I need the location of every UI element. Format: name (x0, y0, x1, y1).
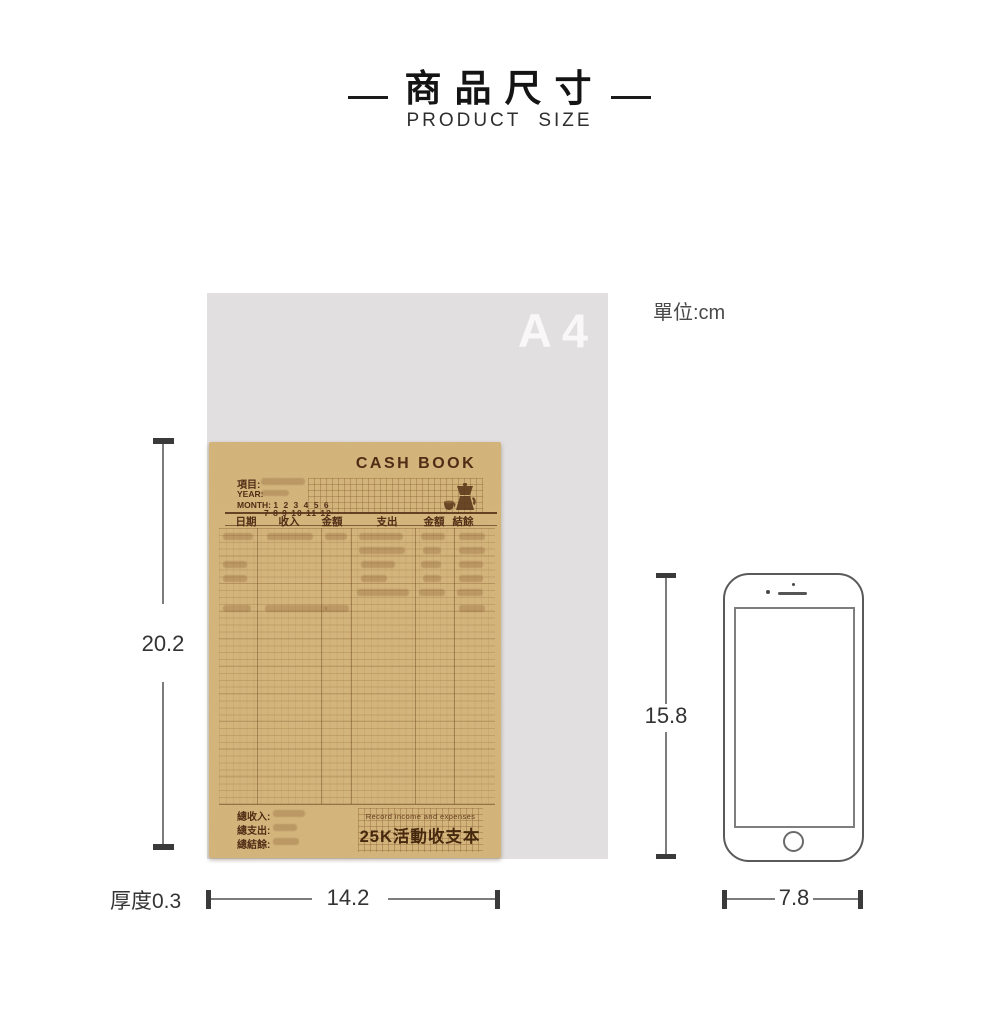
footer-rule (219, 804, 495, 805)
column-rule (257, 528, 258, 804)
dim-cap (495, 890, 500, 909)
dim-line (388, 898, 495, 900)
dim-value-book-height: 20.2 (133, 631, 193, 657)
col-header-expense: 支出 (367, 514, 407, 529)
unit-label: 單位:cm (653, 296, 725, 325)
total-balance-label: 總結餘: (237, 836, 270, 851)
col-header-income: 收入 (269, 514, 309, 529)
column-rule (321, 528, 322, 804)
a4-label: A4 (518, 303, 598, 358)
col-header-date: 日期 (226, 514, 266, 529)
phone-speaker-icon (778, 592, 807, 595)
dim-line (162, 682, 164, 844)
dim-line (211, 898, 312, 900)
dim-line (162, 444, 164, 604)
product-size-infographic: 商品尺寸 PRODUCT SIZE 單位:cm A4 CASH BOOK 項目:… (0, 0, 1000, 1018)
thickness-label: 厚度0.3 (110, 885, 181, 915)
column-rule (351, 528, 352, 804)
dim-value-phone-width: 7.8 (777, 885, 811, 911)
dim-line (665, 578, 667, 704)
dim-value-book-width: 14.2 (320, 885, 376, 911)
phone-screen (734, 607, 855, 828)
dim-value-phone-height: 15.8 (644, 703, 688, 729)
col-header-balance: 結餘 (443, 514, 483, 529)
col-header-amount-1: 金額 (312, 514, 352, 529)
dim-cap (858, 890, 863, 909)
total-expense-label: 總支出: (237, 822, 270, 837)
cash-book-notebook: CASH BOOK 項目: YEAR: MONTH: 1 2 3 4 5 6 7… (209, 442, 501, 858)
total-income-label: 總收入: (237, 808, 270, 823)
phone-sensor-icon (792, 583, 795, 586)
page-title: 商品尺寸 (385, 58, 611, 112)
product-name: 25K活動收支本 (354, 823, 486, 847)
dim-cap (153, 844, 174, 850)
phone-outline (723, 573, 864, 862)
year-label: YEAR: (237, 489, 263, 499)
column-rule (454, 528, 455, 804)
dim-cap (656, 854, 676, 859)
title-left-rule (348, 96, 388, 99)
phone-home-button (783, 831, 804, 852)
coffee-pot-icon (440, 483, 478, 513)
dim-line (665, 732, 667, 854)
cover-title: CASH BOOK (351, 455, 481, 473)
phone-camera-icon (766, 590, 770, 594)
dim-line (727, 898, 775, 900)
english-caption: Record income and expenses (358, 812, 483, 821)
column-rule (415, 528, 416, 804)
title-right-rule (611, 96, 651, 99)
page-subtitle: PRODUCT SIZE (385, 110, 611, 132)
dim-line (813, 898, 858, 900)
